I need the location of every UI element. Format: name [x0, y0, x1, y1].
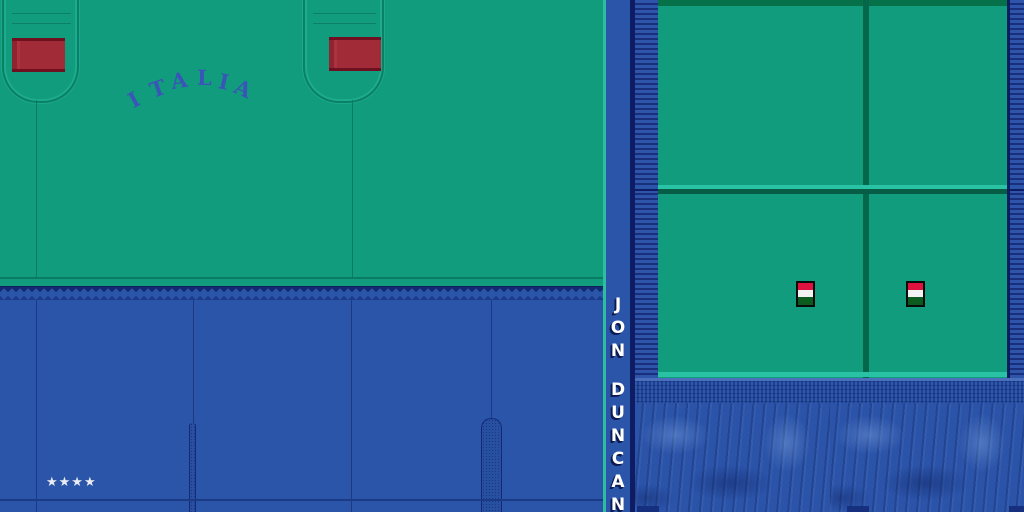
denim-ribbed-band [635, 381, 1024, 403]
flag-stripe-green [908, 297, 923, 305]
ribbed-cross-band [1010, 185, 1024, 191]
tricolor-flag [906, 281, 925, 307]
collar-seam-line [313, 23, 376, 24]
flag-stripe-white [908, 290, 923, 297]
front-seam-line [36, 100, 37, 278]
name-letter: N [606, 343, 630, 360]
collar-template-left [2, 0, 79, 103]
shorts-seam-line [491, 300, 492, 422]
edge-ribbed-strip [1010, 0, 1024, 381]
collar-seam-line [12, 13, 71, 14]
italia-arc-letter: A [169, 69, 188, 92]
name-letter: D [606, 382, 630, 399]
kit-texture-sheet: I T A L I A ★★★★ J O N D U N C A N [0, 0, 1024, 512]
name-letter: N [606, 497, 630, 512]
star-rating: ★★★★ [46, 476, 97, 489]
front-seam-line [352, 100, 353, 278]
shirt-hem-line [0, 277, 604, 279]
shorts-bottom-seam [0, 499, 604, 501]
collar-seam-line [12, 23, 71, 24]
denim-bottom-mark [847, 506, 869, 512]
shorts-seam-line [36, 300, 37, 512]
sleeve-hem-band [658, 372, 1007, 377]
italia-arc-letter: L [197, 67, 212, 88]
name-letter: C [606, 451, 630, 468]
collar-seam-line [313, 13, 376, 14]
ribbed-cross-band [635, 185, 658, 191]
italia-arc-letter: I [125, 88, 144, 111]
italia-arc-letter: A [231, 76, 254, 102]
shorts-gusset-panel [481, 418, 502, 512]
player-name-strip: J O N D U N C A N [606, 0, 630, 512]
italia-arc-letter: T [147, 76, 169, 101]
shorts-seam-line [351, 300, 352, 512]
denim-bottom-mark [637, 506, 659, 512]
name-letter: U [606, 405, 630, 422]
name-letter: N [606, 428, 630, 445]
shorts-panel: ★★★★ [0, 300, 604, 512]
sleeve-horizontal-seam-dark [658, 189, 1007, 194]
denim-bottom-mark [1009, 506, 1024, 512]
name-letter: A [606, 474, 630, 491]
collar-template-right [303, 0, 384, 103]
sleeve-top-band [658, 0, 1007, 6]
waistband-zigzag-texture [0, 286, 604, 300]
chest-patch-left [12, 38, 65, 72]
tricolor-flag [796, 281, 815, 307]
chest-patch-right [329, 37, 381, 71]
flag-stripe-red [798, 283, 813, 290]
sleeve-panels [658, 0, 1007, 378]
flag-stripe-red [908, 283, 923, 290]
italia-arc-letter: I [217, 70, 231, 93]
name-letter: J [606, 297, 630, 314]
flag-stripe-green [798, 297, 813, 305]
cuff-ribbed-strip [635, 0, 658, 378]
shirt-front-panel: I T A L I A [0, 0, 604, 286]
denim-wrinkle-texture [635, 403, 1024, 512]
denim-fabric-texture [635, 378, 1024, 512]
shorts-seam-line [193, 300, 194, 425]
flag-stripe-white [798, 290, 813, 297]
name-letter: O [606, 320, 630, 337]
